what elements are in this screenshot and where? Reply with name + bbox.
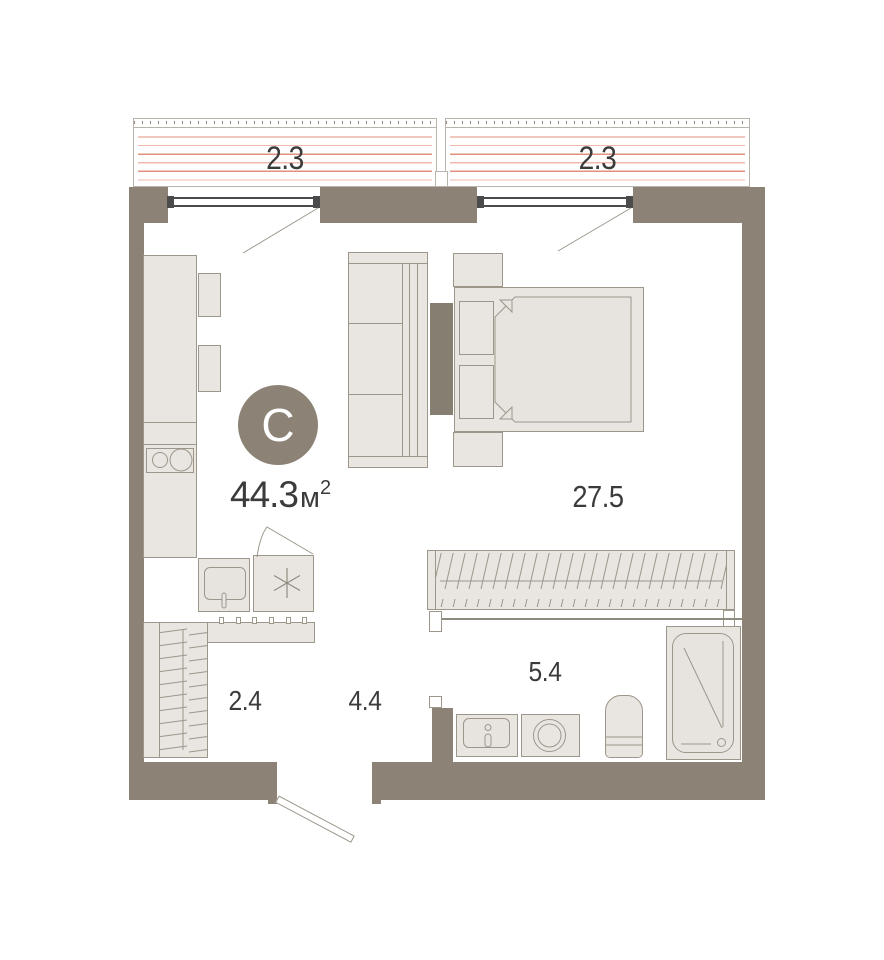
sofa-cushion: [348, 323, 403, 395]
cooktop: [146, 448, 194, 473]
floor-plan: 2.3 2.3 27.5 5.4 4.4 2.4 С 44.3м2: [0, 0, 884, 960]
window-1: [167, 197, 320, 207]
wall-top-middle: [320, 187, 477, 223]
counter-divider: [143, 444, 197, 445]
wardrobe-side-left: [427, 550, 436, 610]
coat-hook: [219, 617, 224, 624]
sofa-backrest-line: [417, 264, 418, 456]
window-2-cap-left: [477, 196, 484, 208]
window-2: [477, 197, 633, 207]
kitchen-cabinet-2: [198, 345, 221, 392]
washing-machine: [521, 714, 580, 757]
bed-pillow-2: [459, 365, 494, 419]
nightstand-top: [453, 253, 503, 287]
balcony-2-area-label: 2.3: [463, 142, 731, 174]
closet-area-label: 2.4: [210, 687, 280, 715]
coat-hook: [236, 617, 241, 624]
kitchen-sink: [204, 567, 246, 600]
wall-bottom-left: [129, 762, 277, 800]
bathroom-area-label: 5.4: [510, 658, 580, 686]
closet-side-panel: [143, 622, 160, 758]
fridge-door-swing: [257, 527, 313, 557]
nightstand-bottom: [453, 432, 503, 467]
bathroom-door-jamb-bottom: [429, 696, 442, 708]
sofa-armrest-bottom: [348, 456, 428, 468]
tv-partition: [430, 303, 453, 415]
wall-bottom-right: [372, 762, 765, 800]
toilet: [605, 695, 643, 758]
balcony-1-area-label: 2.3: [151, 142, 419, 174]
total-area: 44.3м2: [230, 474, 331, 516]
window-2-cap-right: [626, 196, 633, 208]
total-area-value: 44.3: [230, 474, 298, 515]
wardrobe: [427, 550, 735, 610]
window-1-cap-right: [313, 196, 320, 208]
wardrobe-side-right: [726, 550, 735, 610]
unit-type-badge: С: [238, 385, 318, 465]
kitchen-cabinet-1: [198, 273, 221, 317]
coat-hook: [286, 617, 291, 624]
sofa-backrest-line: [409, 264, 410, 456]
sofa-backrest: [402, 263, 428, 457]
counter-divider: [143, 422, 197, 423]
balcony-divider: [435, 171, 448, 187]
refrigerator: [253, 555, 314, 612]
unit-type-letter: С: [261, 398, 294, 452]
living-room-area-label: 27.5: [563, 481, 633, 512]
window-opening-line: [558, 208, 631, 251]
entry-door-leaf: [275, 795, 355, 842]
balcony-railing: [134, 119, 436, 128]
bathtub-inner: [672, 633, 734, 753]
window-1-cap-left: [167, 196, 174, 208]
coat-rack: [207, 622, 315, 643]
wall-left: [129, 187, 144, 762]
balcony-railing: [446, 119, 749, 128]
window-opening-line: [243, 208, 318, 253]
bathroom-partition: [436, 618, 742, 620]
wall-right: [742, 187, 765, 800]
door-jamb-right: [372, 790, 381, 804]
bed-pillow-1: [459, 301, 494, 355]
kitchen-counter: [143, 255, 197, 558]
hallway-area-label: 4.4: [330, 687, 400, 715]
wall-bathroom-pier: [432, 708, 453, 762]
coat-hook: [252, 617, 257, 624]
washbasin: [463, 718, 510, 748]
sofa-cushion: [348, 263, 403, 324]
bathroom-door-jamb-top: [429, 611, 442, 632]
coat-hook: [269, 617, 274, 624]
total-area-unit: м: [300, 482, 320, 514]
coat-hook: [302, 617, 307, 624]
sofa-cushion: [348, 394, 403, 457]
total-area-sup: 2: [320, 477, 331, 499]
